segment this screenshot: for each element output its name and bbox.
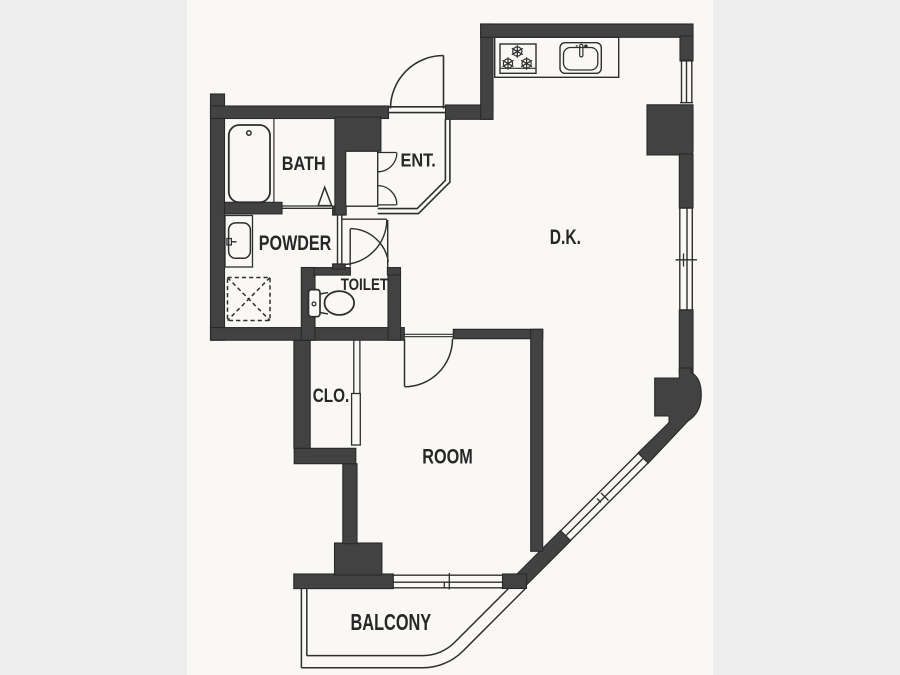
svg-text:POWDER: POWDER	[259, 232, 332, 255]
svg-text:D.K.: D.K.	[550, 226, 581, 249]
svg-text:BALCONY: BALCONY	[351, 609, 432, 635]
svg-text:CLO.: CLO.	[313, 386, 350, 407]
svg-text:BATH: BATH	[282, 153, 326, 175]
svg-text:TOILET: TOILET	[341, 275, 388, 294]
svg-text:ROOM: ROOM	[422, 444, 473, 468]
svg-text:ENT.: ENT.	[401, 150, 436, 171]
